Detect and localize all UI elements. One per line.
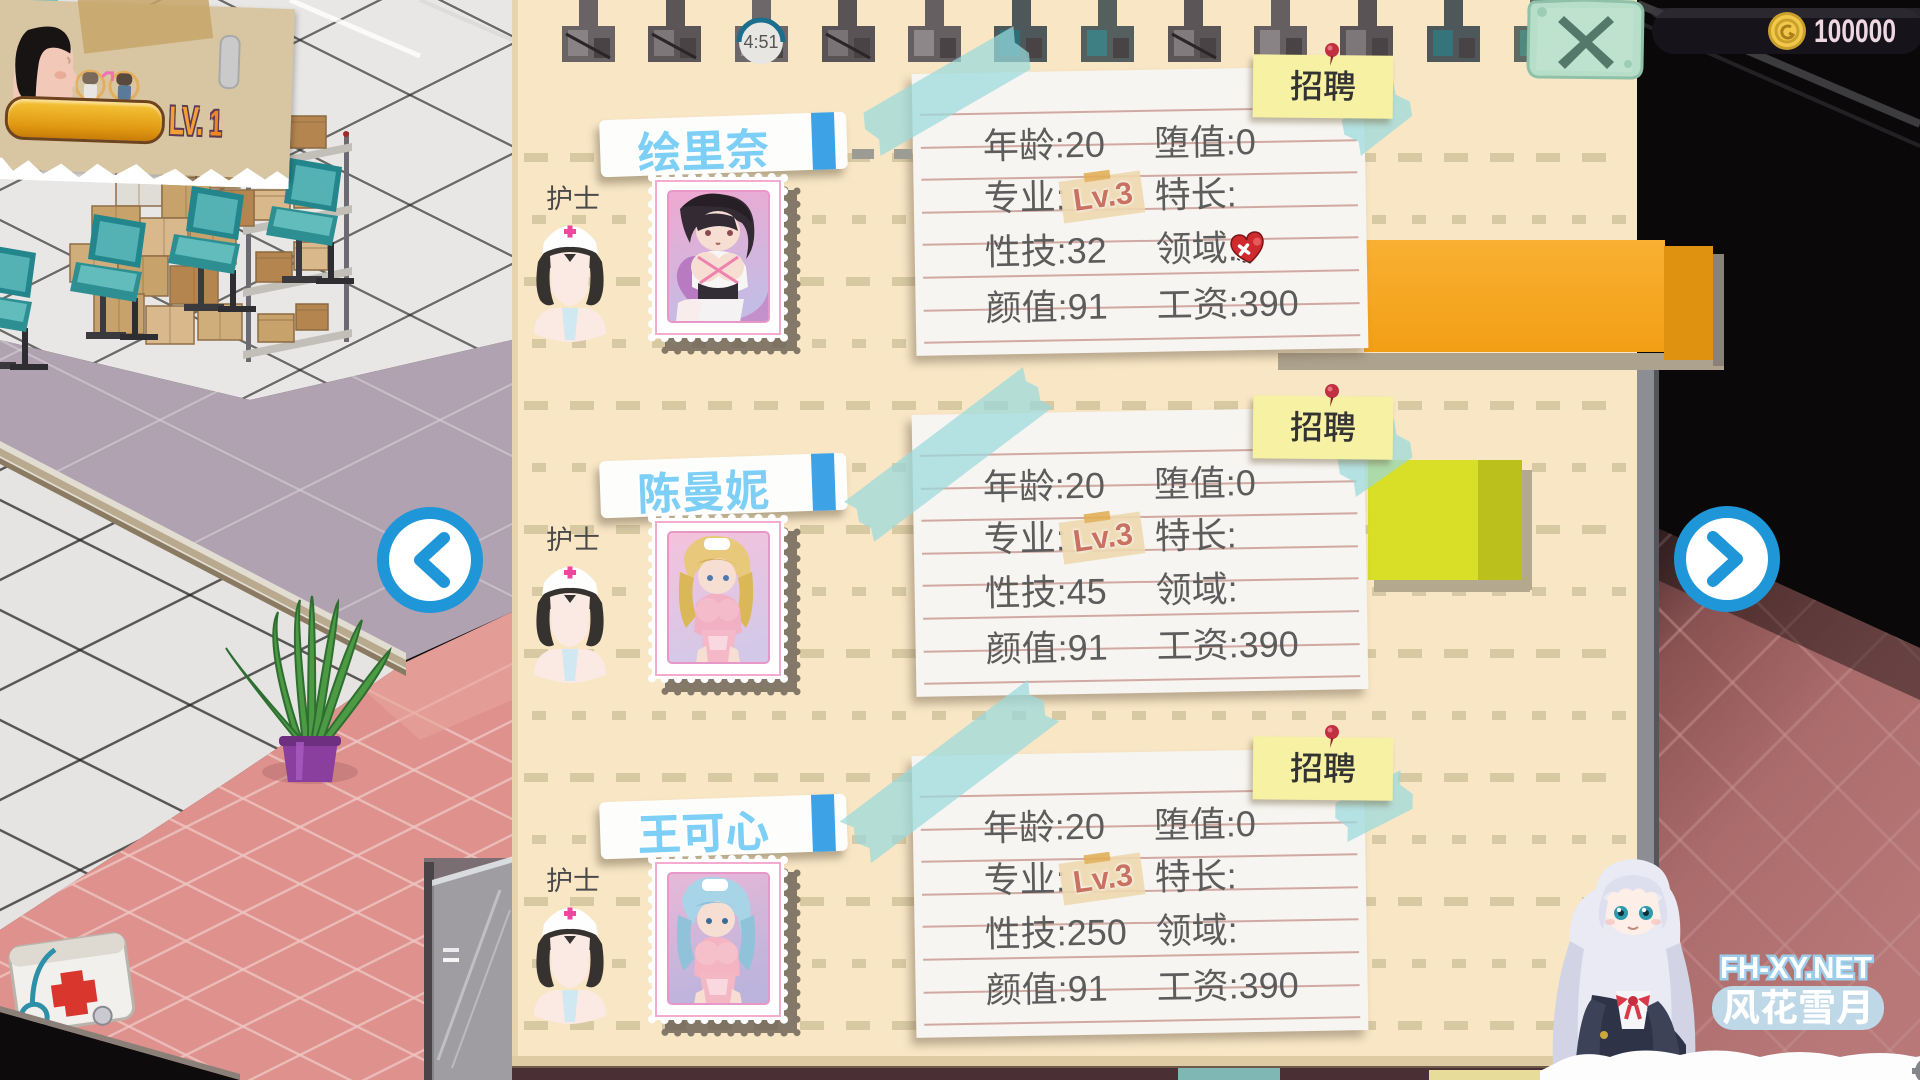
svg-text::0: :0 <box>1225 803 1256 845</box>
svg-text::32: :32 <box>1056 230 1107 272</box>
svg-text::91: :91 <box>1057 968 1108 1010</box>
svg-text::0: :0 <box>1225 121 1256 163</box>
svg-text::: : <box>1226 173 1237 214</box>
svg-text::91: :91 <box>1057 286 1108 328</box>
svg-text::: : <box>1226 514 1237 555</box>
svg-text::390: :390 <box>1228 282 1299 324</box>
svg-text:FH-XY.NET: FH-XY.NET <box>1720 950 1872 985</box>
svg-text:4:51: 4:51 <box>743 32 778 52</box>
svg-text::250: :250 <box>1056 911 1127 953</box>
svg-text::390: :390 <box>1228 964 1299 1006</box>
svg-text::0: :0 <box>1225 462 1256 504</box>
svg-text::: : <box>1226 855 1237 896</box>
svg-text::20: :20 <box>1054 124 1105 166</box>
svg-text::390: :390 <box>1228 623 1299 665</box>
svg-text::: : <box>1227 909 1238 950</box>
svg-text::: : <box>1227 568 1238 609</box>
